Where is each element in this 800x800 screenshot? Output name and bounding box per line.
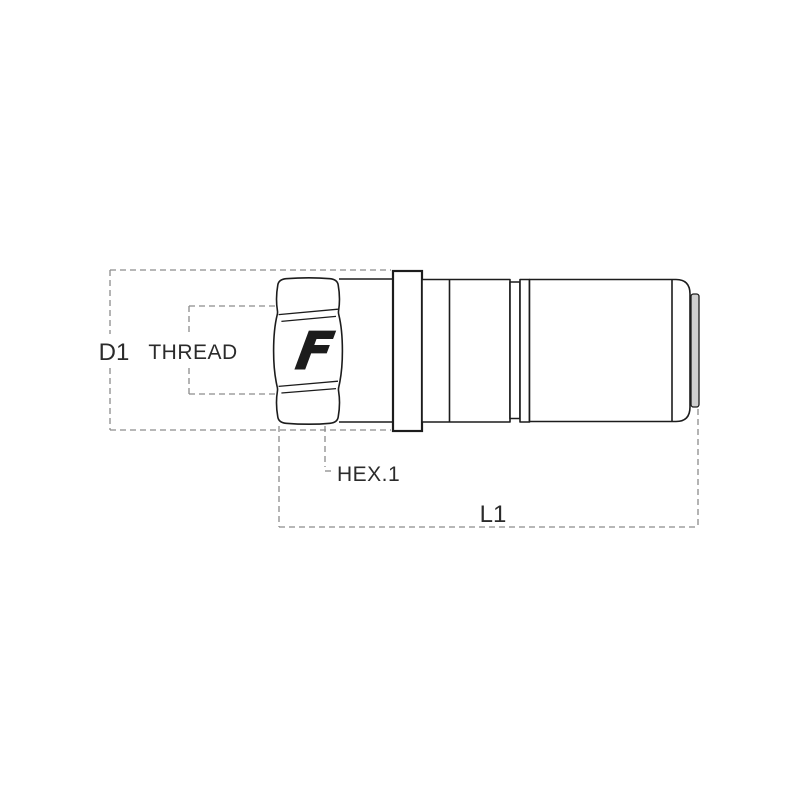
thread-label: THREAD (148, 341, 237, 364)
end-cap (691, 294, 699, 407)
d1-label: D1 (99, 339, 130, 366)
hex1-label: HEX.1 (337, 463, 400, 486)
coupling-drawing: F (274, 271, 699, 431)
body-section (422, 280, 510, 423)
technical-drawing: F D1 THREAD HEX.1 L1 (0, 0, 800, 800)
collar-ring (520, 280, 530, 423)
l1-label: L1 (480, 501, 507, 528)
flange (393, 271, 422, 431)
neck-section (339, 279, 393, 422)
drawing-canvas: F D1 THREAD HEX.1 L1 (0, 0, 800, 800)
sleeve (530, 280, 691, 422)
hex1-dimension-lines (325, 426, 334, 471)
groove-ring (510, 282, 520, 419)
